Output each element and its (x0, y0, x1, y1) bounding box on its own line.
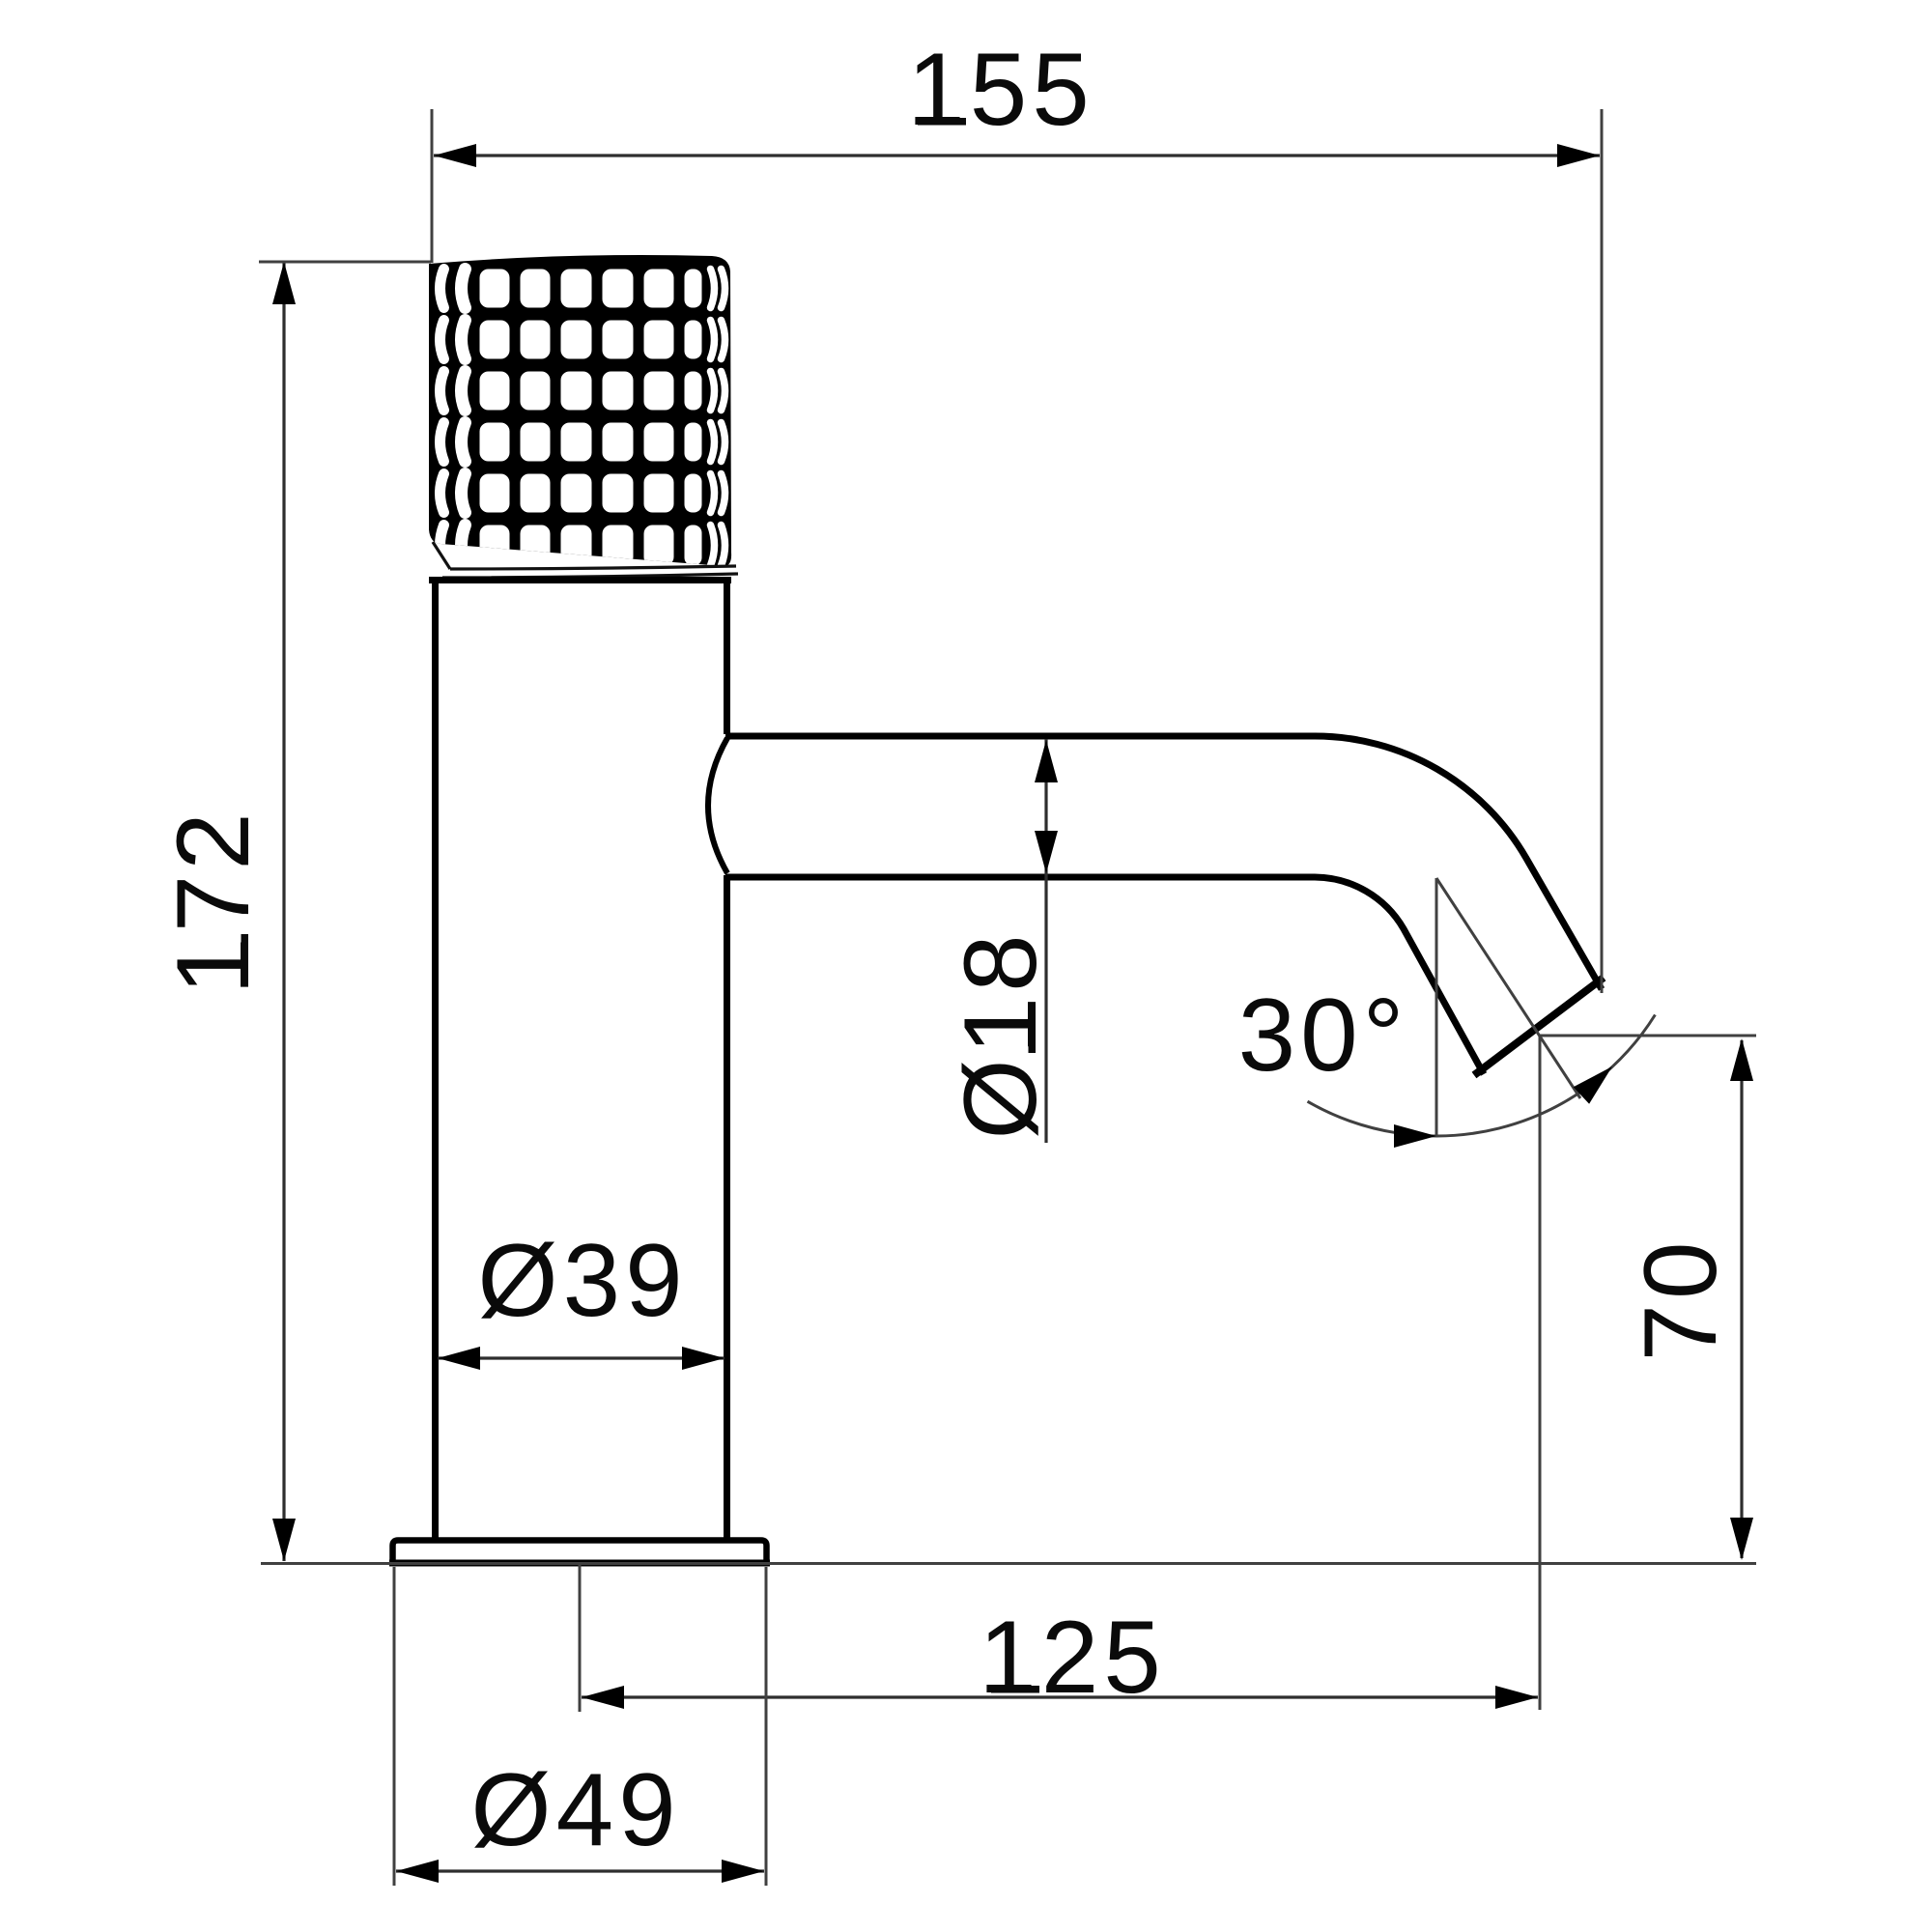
svg-text:70: 70 (1622, 1236, 1738, 1361)
svg-text:Ø18: Ø18 (942, 929, 1058, 1139)
svg-text:172: 172 (155, 808, 270, 995)
svg-text:Ø49: Ø49 (470, 1751, 680, 1867)
svg-text:Ø39: Ø39 (477, 1222, 687, 1338)
svg-text:30°: 30° (1238, 977, 1409, 1093)
svg-text:155: 155 (907, 31, 1094, 147)
